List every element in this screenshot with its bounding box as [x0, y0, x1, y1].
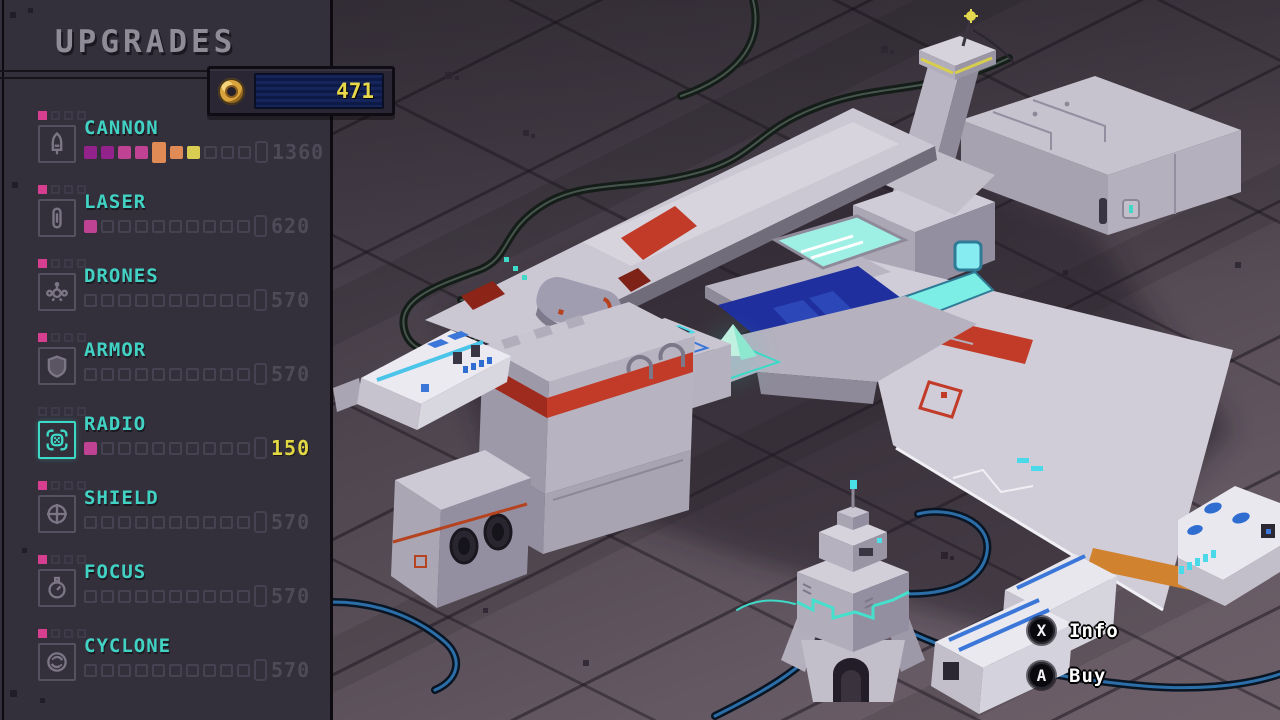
tier-pip — [51, 481, 60, 490]
level-pip — [221, 146, 234, 159]
radio-icon — [38, 421, 76, 459]
level-pip — [152, 590, 165, 603]
level-pip — [135, 220, 148, 233]
level-pip — [101, 220, 114, 233]
hangar-scene — [333, 0, 1280, 720]
level-pip — [220, 664, 233, 677]
level-pip — [135, 294, 148, 307]
tier-pip — [51, 111, 60, 120]
level-pip — [203, 294, 216, 307]
upgrade-row[interactable]: SHIELD 570 — [0, 476, 333, 550]
upgrade-name: CYCLONE — [84, 635, 171, 657]
focus-icon — [38, 569, 76, 607]
coin-icon — [218, 78, 245, 105]
buy-hint-label: Buy — [1069, 665, 1106, 687]
tier-pip — [64, 259, 73, 268]
currency-display: 471 — [254, 73, 384, 109]
info-hint-label: Info — [1069, 620, 1119, 642]
level-pip — [237, 590, 250, 603]
level-pip — [118, 146, 131, 159]
level-pip — [220, 516, 233, 529]
tier-pips — [38, 259, 86, 268]
cannon-icon — [38, 125, 76, 163]
upgrade-name: CANNON — [84, 117, 159, 139]
level-pip — [204, 146, 217, 159]
level-pip — [135, 146, 148, 159]
level-pip — [135, 442, 148, 455]
level-pip — [187, 146, 200, 159]
level-pip — [255, 141, 268, 163]
upgrade-price: 570 — [271, 288, 310, 312]
title-divider — [0, 70, 212, 79]
level-pip — [118, 220, 131, 233]
level-pip — [254, 511, 267, 533]
tier-pip — [64, 185, 73, 194]
upgrade-row[interactable]: DRONES 570 — [0, 254, 333, 328]
upgrade-row[interactable]: RADIO 150 — [0, 402, 333, 476]
level-pip — [101, 146, 114, 159]
level-pips: 1360 — [84, 139, 308, 165]
level-pip — [152, 516, 165, 529]
level-pip — [186, 220, 199, 233]
level-pip — [238, 146, 251, 159]
tier-pip — [38, 481, 47, 490]
level-pip — [118, 664, 131, 677]
level-pip — [118, 516, 131, 529]
level-pip — [84, 664, 97, 677]
level-pip — [84, 368, 97, 381]
level-pip — [84, 146, 97, 159]
upgrade-row[interactable]: LASER 620 — [0, 180, 333, 254]
level-pip — [220, 368, 233, 381]
level-pip — [220, 590, 233, 603]
level-pip — [169, 664, 182, 677]
level-pip — [152, 664, 165, 677]
level-pip — [203, 368, 216, 381]
tier-pips — [38, 629, 86, 638]
level-pip — [135, 516, 148, 529]
upgrade-name: DRONES — [84, 265, 159, 287]
level-pip — [254, 659, 267, 681]
level-pip — [84, 220, 97, 233]
upgrade-name: SHIELD — [84, 487, 159, 509]
upgrade-price: 570 — [271, 510, 310, 534]
level-pip — [169, 368, 182, 381]
level-pip — [152, 294, 165, 307]
level-pip — [220, 220, 233, 233]
level-pip — [186, 368, 199, 381]
level-pip — [118, 442, 131, 455]
level-pip — [237, 294, 250, 307]
tier-pip — [38, 185, 47, 194]
upgrade-name: ARMOR — [84, 339, 146, 361]
level-pip — [186, 664, 199, 677]
tier-pip — [51, 407, 60, 416]
level-pip — [237, 220, 250, 233]
level-pip — [135, 590, 148, 603]
level-pip — [135, 664, 148, 677]
level-pip — [152, 142, 166, 163]
level-pip — [118, 368, 131, 381]
tier-pip — [64, 481, 73, 490]
info-hint[interactable]: X Info — [1028, 614, 1119, 647]
level-pip — [84, 442, 97, 455]
tier-pip — [64, 407, 73, 416]
tier-pip — [38, 555, 47, 564]
tier-pips — [38, 407, 86, 416]
cyclone-icon — [38, 643, 76, 681]
sidebar-screw-decoration — [10, 12, 16, 18]
level-pips: 570 — [84, 361, 308, 387]
level-pip — [186, 294, 199, 307]
level-pips: 620 — [84, 213, 308, 239]
level-pip — [254, 585, 267, 607]
sidebar-screw-decoration — [40, 698, 45, 703]
ship-illustration — [333, 0, 1280, 720]
button-hints: X Info A Buy — [1028, 614, 1119, 704]
tier-pip — [64, 111, 73, 120]
upgrade-row[interactable]: CYCLONE 570 — [0, 624, 333, 698]
upgrade-row[interactable]: FOCUS 570 — [0, 550, 333, 624]
level-pip — [101, 294, 114, 307]
level-pip — [254, 437, 267, 459]
level-pip — [237, 664, 250, 677]
tier-pip — [51, 259, 60, 268]
level-pip — [135, 368, 148, 381]
tier-pip — [64, 555, 73, 564]
level-pip — [186, 590, 199, 603]
level-pip — [101, 368, 114, 381]
level-pips: 150 — [84, 435, 308, 461]
currency-panel: 471 — [207, 66, 395, 116]
level-pip — [237, 516, 250, 529]
upgrade-name: LASER — [84, 191, 146, 213]
upgrade-price: 620 — [271, 214, 310, 238]
level-pip — [203, 590, 216, 603]
level-pip — [101, 590, 114, 603]
upgrade-price: 570 — [271, 362, 310, 386]
level-pip — [84, 516, 97, 529]
level-pip — [152, 220, 165, 233]
level-pip — [203, 664, 216, 677]
level-pip — [237, 442, 250, 455]
tier-pip — [38, 407, 47, 416]
tier-pip — [51, 185, 60, 194]
upgrade-price: 150 — [271, 436, 310, 460]
level-pip — [254, 215, 267, 237]
tier-pips — [38, 111, 86, 120]
upgrade-price: 1360 — [272, 140, 324, 164]
upgrade-list: CANNON 1360 LASER 620 DRONES 570 — [0, 106, 333, 698]
level-pip — [203, 516, 216, 529]
level-pip — [220, 294, 233, 307]
level-pip — [169, 294, 182, 307]
sidebar-screw-decoration — [28, 8, 33, 13]
level-pip — [186, 442, 199, 455]
level-pip — [254, 289, 267, 311]
tier-pips — [38, 185, 86, 194]
level-pip — [203, 442, 216, 455]
gamepad-a-button-icon: A — [1028, 662, 1055, 689]
level-pip — [118, 294, 131, 307]
tier-pips — [38, 481, 86, 490]
level-pip — [186, 516, 199, 529]
level-pip — [152, 368, 165, 381]
level-pips: 570 — [84, 287, 308, 313]
tier-pip — [38, 111, 47, 120]
level-pip — [84, 590, 97, 603]
level-pip — [254, 363, 267, 385]
level-pip — [152, 442, 165, 455]
level-pip — [169, 220, 182, 233]
tier-pip — [51, 555, 60, 564]
upgrade-price: 570 — [271, 658, 310, 682]
level-pips: 570 — [84, 657, 308, 683]
tier-pip — [38, 259, 47, 268]
gamepad-x-button-icon: X — [1028, 617, 1055, 644]
armor-icon — [38, 347, 76, 385]
drones-icon — [38, 273, 76, 311]
level-pips: 570 — [84, 583, 308, 609]
tier-pip — [38, 333, 47, 342]
level-pip — [203, 220, 216, 233]
laser-icon — [38, 199, 76, 237]
page-title: UPGRADES — [55, 24, 236, 60]
level-pip — [169, 442, 182, 455]
level-pip — [169, 590, 182, 603]
tier-pip — [38, 629, 47, 638]
tier-pip — [51, 333, 60, 342]
upgrade-price: 570 — [271, 584, 310, 608]
tier-pips — [38, 555, 86, 564]
level-pip — [101, 664, 114, 677]
tier-pip — [64, 629, 73, 638]
shield-icon — [38, 495, 76, 533]
tier-pip — [51, 629, 60, 638]
level-pip — [169, 516, 182, 529]
upgrade-name: FOCUS — [84, 561, 146, 583]
level-pip — [101, 442, 114, 455]
tier-pip — [64, 333, 73, 342]
upgrade-row[interactable]: ARMOR 570 — [0, 328, 333, 402]
upgrade-row[interactable]: CANNON 1360 — [0, 106, 333, 180]
level-pip — [170, 146, 183, 159]
game-screen: UPGRADES CANNON 1360 LASER 620 — [0, 0, 1280, 720]
level-pip — [237, 368, 250, 381]
upgrade-name: RADIO — [84, 413, 146, 435]
level-pips: 570 — [84, 509, 308, 535]
level-pip — [101, 516, 114, 529]
level-pip — [84, 294, 97, 307]
buy-hint[interactable]: A Buy — [1028, 659, 1119, 692]
level-pip — [220, 442, 233, 455]
currency-amount: 471 — [336, 79, 374, 103]
tier-pips — [38, 333, 86, 342]
level-pip — [118, 590, 131, 603]
